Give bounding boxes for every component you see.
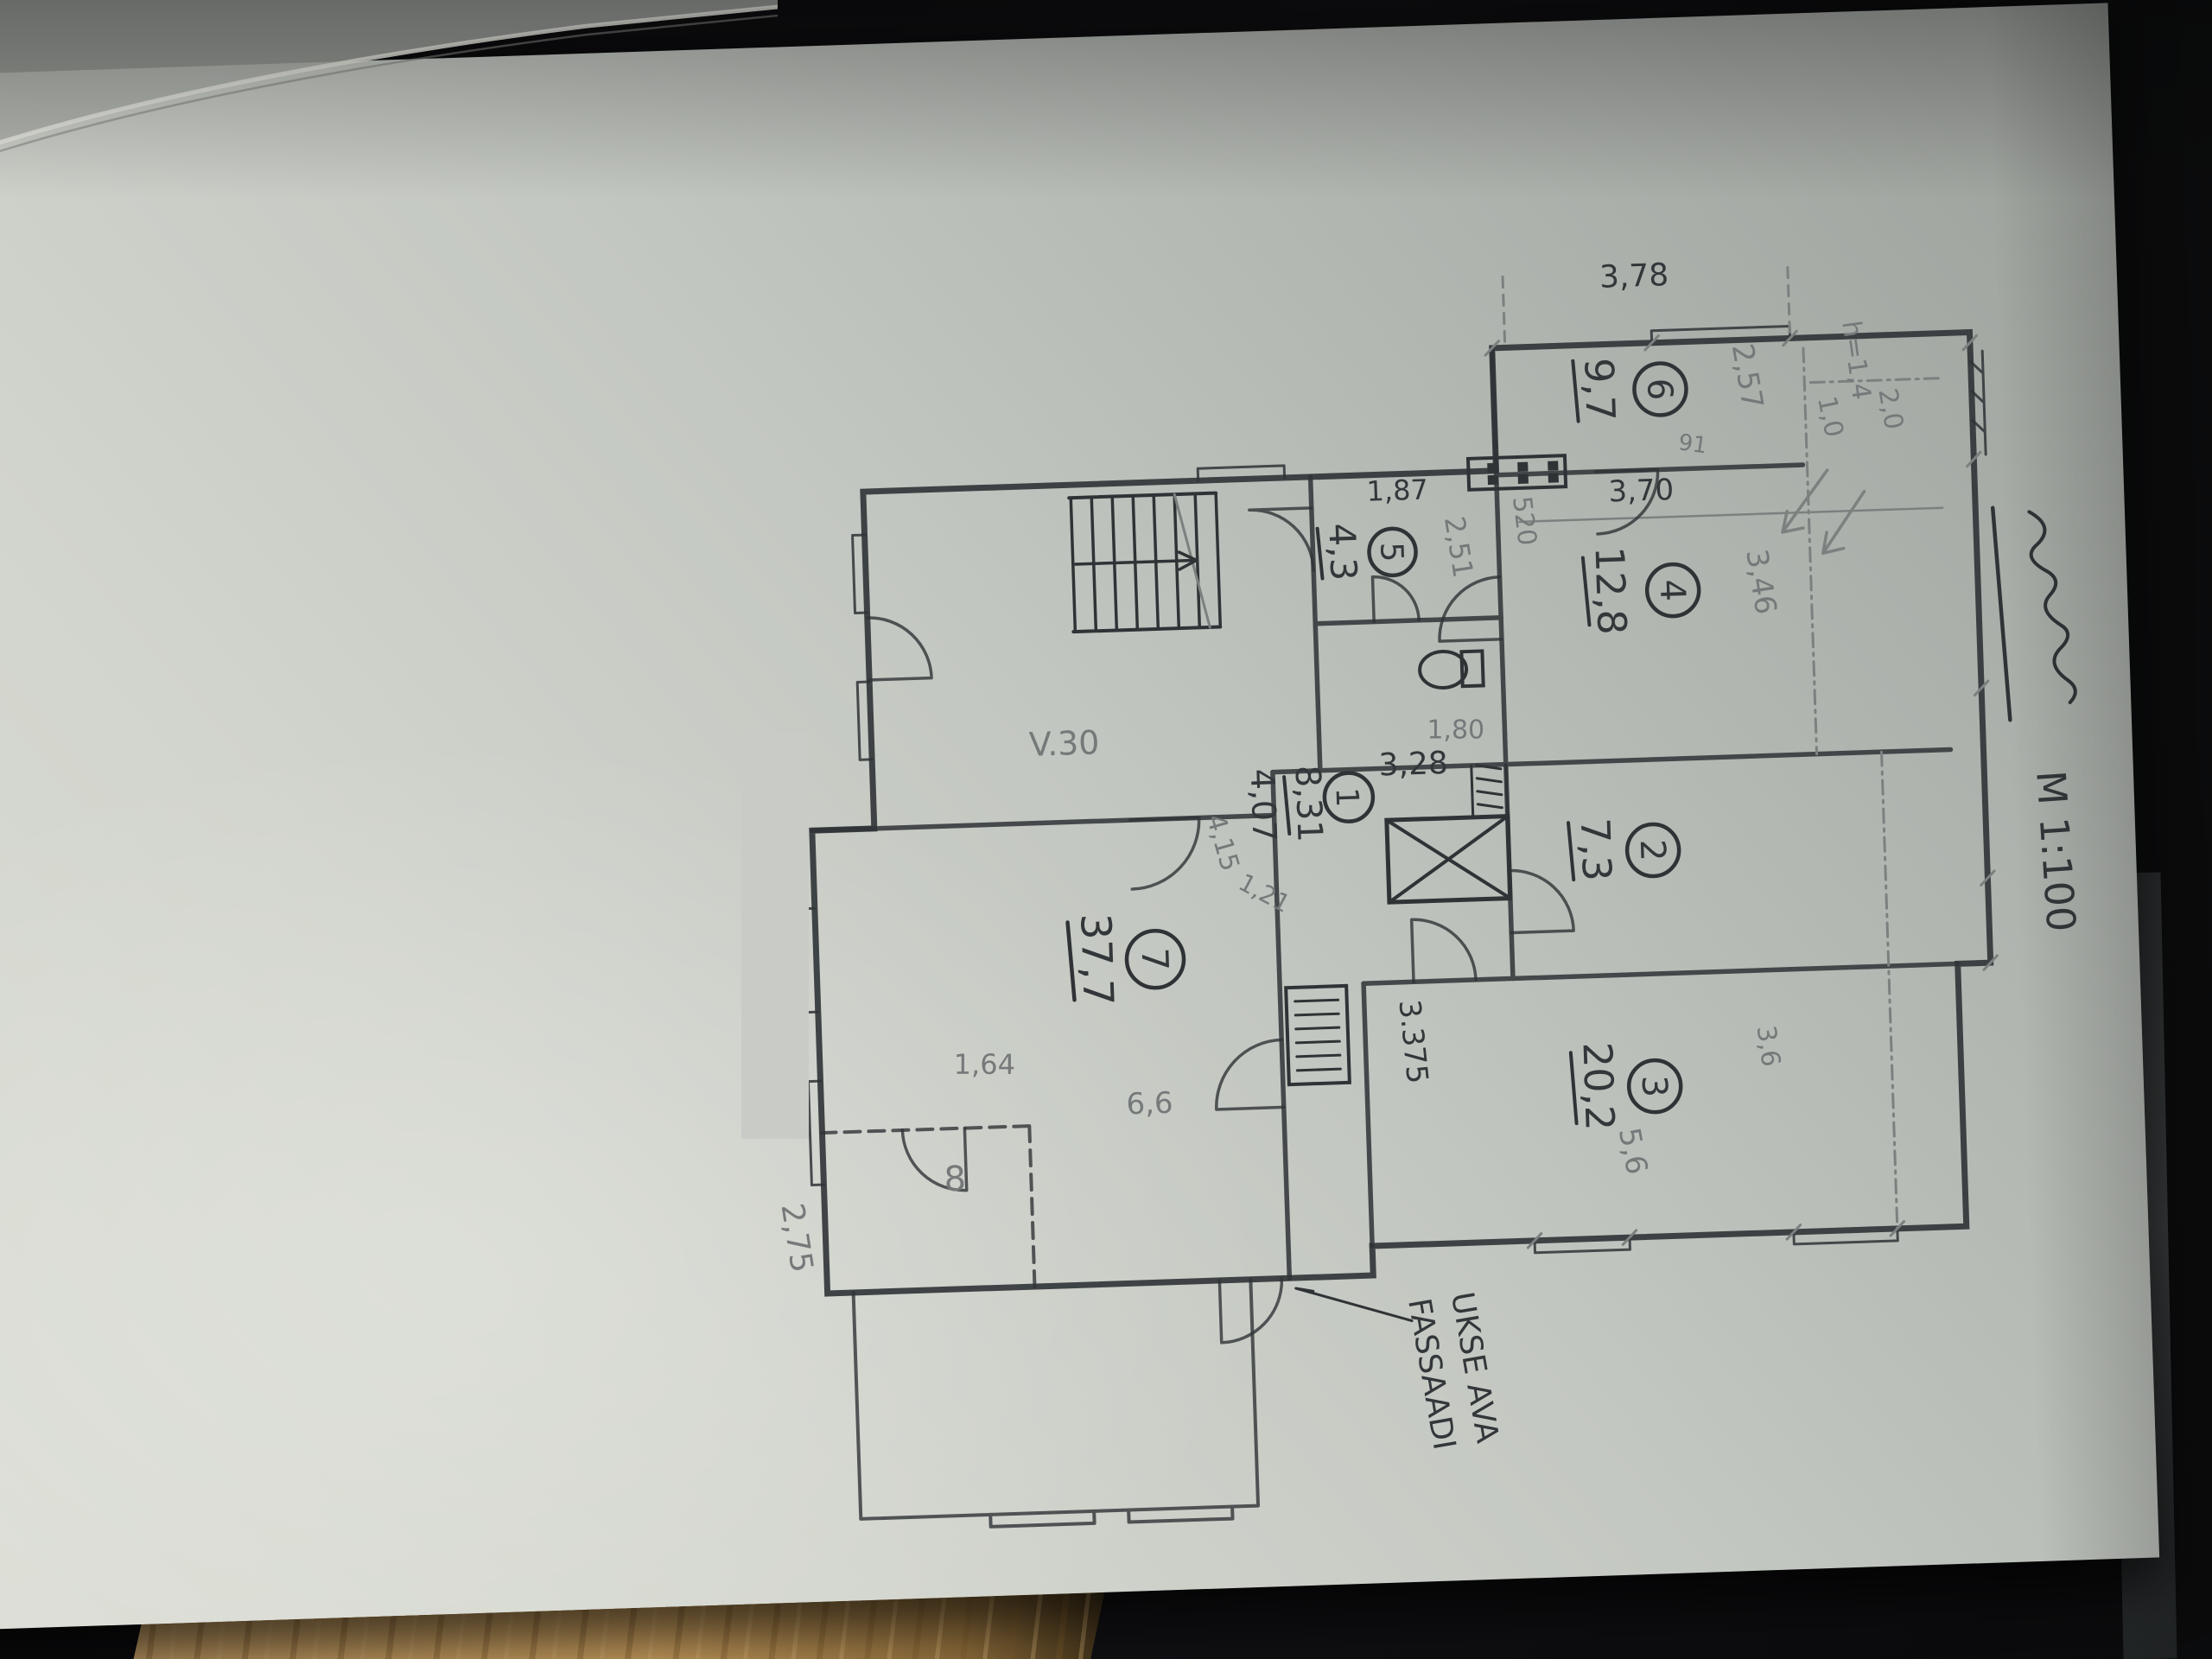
dim-66: 6,6 (1126, 1086, 1173, 1122)
facade-note-leader (1296, 1285, 1412, 1325)
dim-36: 3,6 (1751, 1024, 1786, 1069)
dim-121: 1,21 (1234, 868, 1295, 918)
floor-plan-rotated: 6 9,7 3,78 2,57 1,0 2,0 h=1,4 91 4 12,8 … (0, 0, 2212, 1659)
photo-of-floor-plan: 6 9,7 3,78 2,57 1,0 2,0 h=1,4 91 4 12,8 … (0, 0, 2212, 1659)
door-arc-wc (1372, 575, 1419, 622)
door-arc-room4 (1438, 577, 1502, 641)
veranda-facade-walls (854, 1280, 1259, 1531)
dim-328: 3,28 (1378, 746, 1448, 784)
room3-area: 20,2 (1573, 1041, 1623, 1131)
room1-area: 8,31 (1287, 765, 1330, 843)
room8-partitions (822, 1126, 1034, 1294)
redaction-bar (741, 733, 809, 1139)
dim-3375: 3.375 (1391, 998, 1434, 1085)
scale-label: M 1:100 (2027, 769, 2085, 933)
door-arc-room1-room7 (1214, 1039, 1284, 1109)
door-arc-entry (868, 616, 931, 680)
door-arc-room5 (1249, 508, 1313, 572)
dim-370: 3,70 (1608, 473, 1675, 509)
pencil-arrow-1 (1781, 470, 1829, 532)
toilet-symbol (1419, 650, 1483, 688)
room6-area: 9,7 (1575, 357, 1624, 422)
staircase (1069, 493, 1220, 632)
room3-number: 3 (1634, 1075, 1675, 1098)
annotation-v30: V.30 (1028, 723, 1100, 764)
illegible-scribble (1993, 505, 2076, 721)
door-arc-room3 (1412, 918, 1476, 982)
chimney-flue (1385, 765, 1510, 903)
room7-number: 7 (1134, 947, 1177, 971)
room2-number: 2 (1632, 839, 1673, 862)
door-arc-room2 (1510, 868, 1573, 932)
door-arc-hall-room7 (1130, 817, 1202, 889)
pencil-construction-line (1519, 508, 1942, 522)
dim-257: 2,57 (1725, 341, 1770, 411)
attic-height-lines (1803, 344, 1967, 1231)
dim-520: 520 (1506, 494, 1542, 547)
dim-187: 1,87 (1366, 473, 1428, 507)
floor-plan-svg: 6 9,7 3,78 2,57 1,0 2,0 h=1,4 91 4 12,8 … (0, 0, 2212, 1659)
room7-area: 37,7 (1071, 912, 1122, 1007)
dim-164: 1,64 (954, 1048, 1015, 1081)
room1-number: 1 (1329, 787, 1365, 808)
room5-number: 5 (1373, 542, 1409, 563)
dim-56: 5,6 (1611, 1125, 1655, 1178)
room1-area2: 4,07 (1243, 768, 1284, 842)
dim-h14: h=1,4 (1835, 319, 1876, 402)
dim-91: 91 (1676, 429, 1708, 459)
room5-area: 4,3 (1320, 523, 1364, 582)
room4-area: 12,8 (1586, 545, 1635, 635)
dim-275: 2,75 (773, 1201, 819, 1275)
dim-346: 3,46 (1738, 547, 1783, 617)
dim-415: 4,15 (1200, 810, 1245, 874)
room2-area: 7,3 (1572, 817, 1620, 882)
dim-180: 1,80 (1427, 715, 1484, 745)
window-symbols (785, 320, 2012, 1276)
room4-number: 4 (1652, 579, 1693, 602)
dim-378: 3,78 (1599, 257, 1669, 296)
room8-number: 8 (944, 1160, 967, 1200)
pencil-arrow-2 (1821, 492, 1866, 554)
dim-251: 2,51 (1438, 514, 1480, 580)
dim-20: 2,0 (1872, 386, 1909, 432)
room6-number: 6 (1639, 378, 1680, 401)
radiator-symbol (1286, 986, 1350, 1084)
dim-10: 1,0 (1811, 393, 1849, 440)
